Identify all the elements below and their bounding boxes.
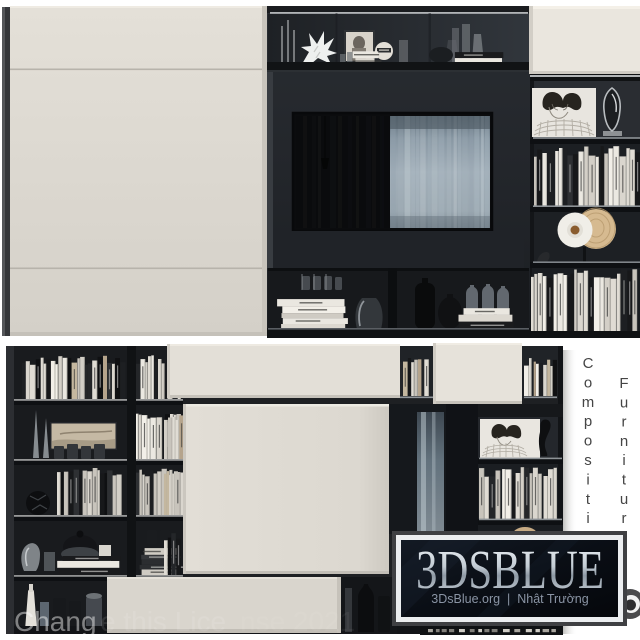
svg-text:i: i — [586, 471, 589, 488]
svg-text:e this Lice: e this Lice — [100, 606, 226, 637]
svg-text:o: o — [584, 374, 592, 391]
svg-text:r: r — [622, 510, 627, 527]
svg-text:r: r — [622, 414, 627, 431]
svg-text:u: u — [620, 491, 628, 508]
svg-text:3DSBLUE: 3DSBLUE — [416, 539, 604, 600]
svg-text:s: s — [584, 452, 592, 469]
svg-text:F: F — [619, 375, 628, 392]
svg-text:i: i — [622, 452, 625, 469]
svg-text:p: p — [584, 413, 592, 430]
svg-text:Chang: Chang — [14, 606, 97, 637]
svg-text:C: C — [583, 355, 594, 372]
svg-text:m: m — [582, 394, 595, 411]
svg-text:n: n — [620, 433, 628, 450]
svg-text:nse 2021: nse 2021 — [240, 606, 355, 637]
svg-text:o: o — [584, 433, 592, 450]
svg-text:3DsBlue.org | Nhật Trường: 3DsBlue.org | Nhật Trường — [431, 592, 588, 606]
svg-text:i: i — [586, 510, 589, 527]
svg-text:u: u — [620, 394, 628, 411]
